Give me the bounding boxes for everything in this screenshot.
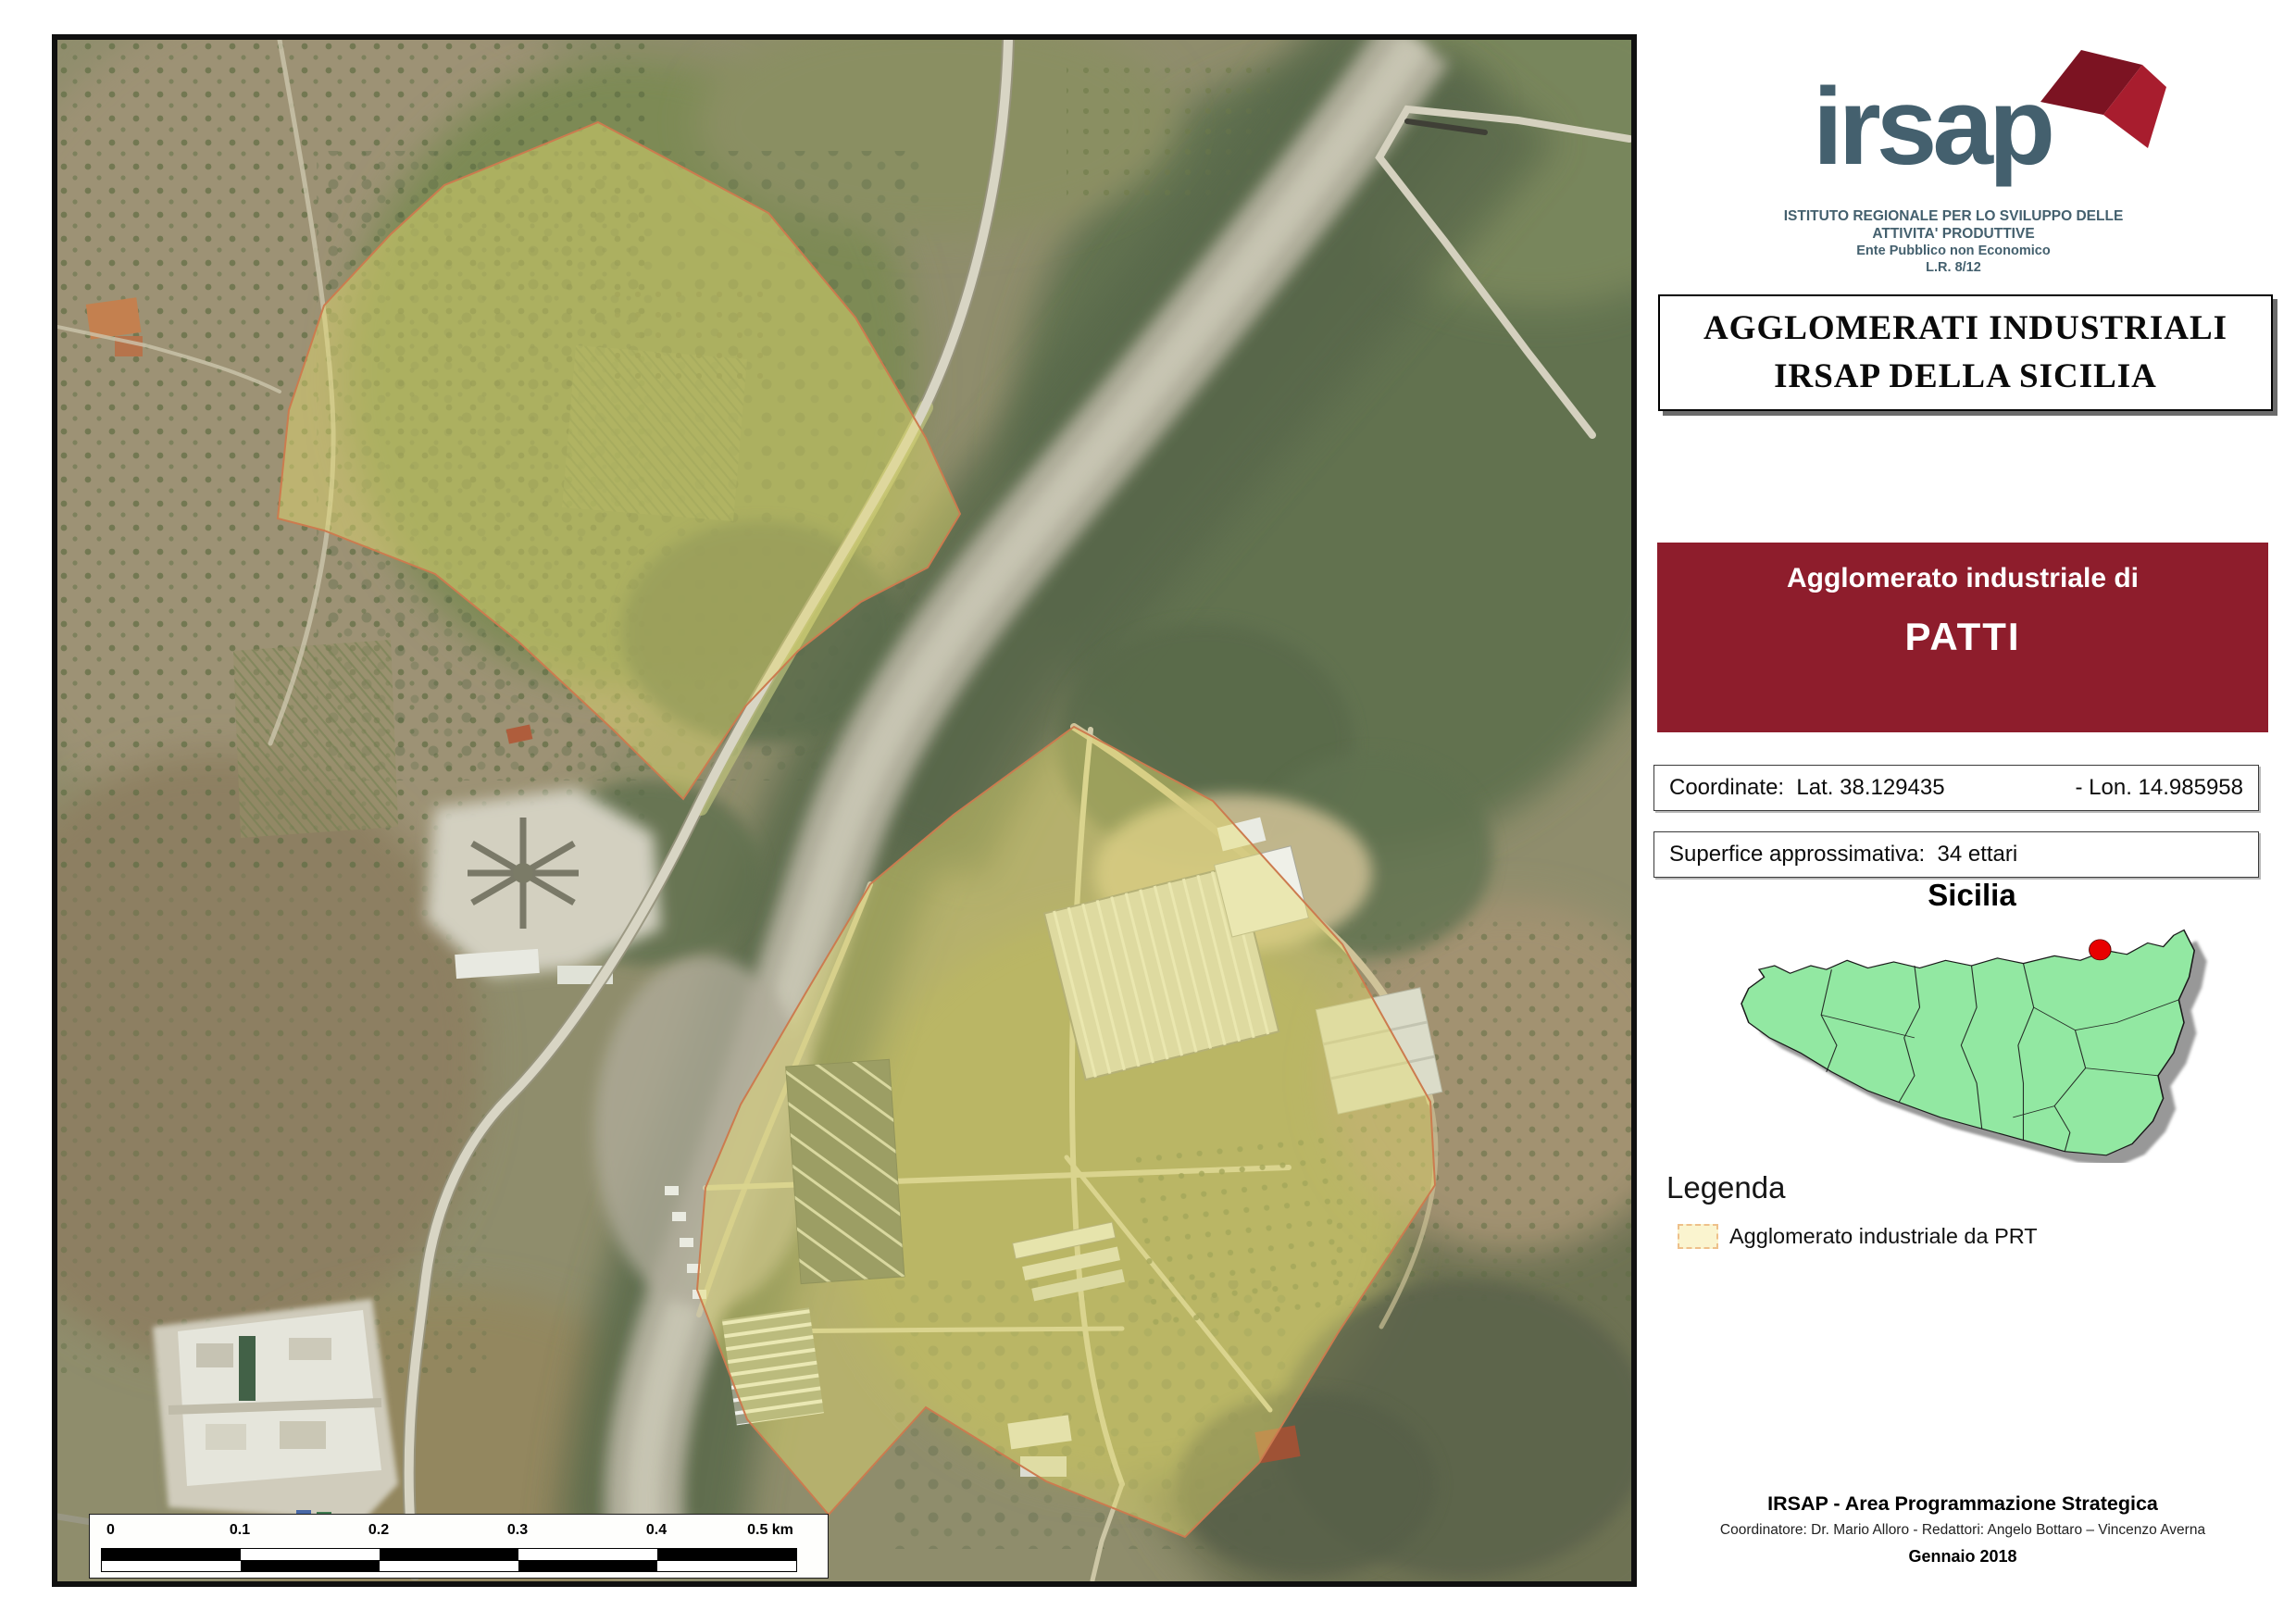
sicilia-island-shape bbox=[1741, 930, 2194, 1155]
scale-tick-label: 0.4 bbox=[646, 1522, 667, 1539]
aerial-orthophoto bbox=[57, 40, 1631, 1581]
scale-bar: 0 0.1 0.2 0.3 0.4 0.5 km bbox=[89, 1514, 829, 1579]
patti-location-marker bbox=[2090, 940, 2112, 960]
scale-tick-label: 0.2 bbox=[368, 1522, 389, 1539]
document-title-line1: AGGLOMERATI INDUSTRIALI bbox=[1660, 305, 2271, 353]
footer-department: IRSAP - Area Programmazione Strategica bbox=[1655, 1492, 2270, 1516]
map-layout-page: 0 0.1 0.2 0.3 0.4 0.5 km irsap ISTITUTO … bbox=[0, 0, 2296, 1623]
latitude-value: Lat. 38.129435 bbox=[1796, 775, 1944, 801]
legend-swatch-prt-zone bbox=[1678, 1224, 1718, 1249]
agglomerato-name: PATTI bbox=[1657, 615, 2268, 659]
footer-authors: Coordinatore: Dr. Mario Alloro - Redatto… bbox=[1655, 1522, 2270, 1539]
scale-bar-checkerboard bbox=[101, 1548, 797, 1572]
institute-line: ATTIVITA' PRODUTTIVE bbox=[1657, 225, 2250, 243]
footer-credits: IRSAP - Area Programmazione Strategica C… bbox=[1655, 1492, 2270, 1567]
document-title-box: AGGLOMERATI INDUSTRIALI IRSAP DELLA SICI… bbox=[1658, 294, 2273, 411]
institute-line: Ente Pubblico non Economico bbox=[1657, 243, 2250, 259]
agglomerato-name-box: Agglomerato industriale di PATTI bbox=[1657, 543, 2268, 732]
surface-value: 34 ettari bbox=[1937, 842, 2017, 868]
inset-map-title: Sicilia bbox=[1731, 878, 2213, 913]
scale-tick-label: 0.5 km bbox=[747, 1522, 793, 1539]
surface-label: Superfice approssimativa: bbox=[1669, 842, 1925, 868]
document-title-line2: IRSAP DELLA SICILIA bbox=[1660, 353, 2271, 401]
institute-line: ISTITUTO REGIONALE PER LO SVILUPPO DELLE bbox=[1657, 207, 2250, 225]
scale-tick-label: 0.1 bbox=[230, 1522, 250, 1539]
coordinates-box: Coordinate: Lat. 38.129435 - Lon. 14.985… bbox=[1653, 765, 2259, 811]
institute-subtitle: ISTITUTO REGIONALE PER LO SVILUPPO DELLE… bbox=[1657, 207, 2250, 276]
footer-date: Gennaio 2018 bbox=[1655, 1547, 2270, 1567]
legend-title: Legenda bbox=[1666, 1170, 1785, 1205]
longitude-value: - Lon. 14.985958 bbox=[2076, 775, 2244, 801]
scale-tick-label: 0.3 bbox=[507, 1522, 528, 1539]
agglomerato-label: Agglomerato industriale di bbox=[1657, 563, 2268, 594]
scale-tick-label: 0 bbox=[106, 1522, 115, 1539]
surface-box: Superfice approssimativa: 34 ettari bbox=[1653, 831, 2259, 878]
coordinate-label: Coordinate: bbox=[1669, 775, 1784, 801]
aerial-map-frame: 0 0.1 0.2 0.3 0.4 0.5 km bbox=[52, 34, 1637, 1587]
institute-line: L.R. 8/12 bbox=[1657, 259, 2250, 276]
legend-item-label: Agglomerato industriale da PRT bbox=[1729, 1224, 2038, 1249]
irsap-flag-icon bbox=[2035, 44, 2174, 156]
sicilia-inset-map bbox=[1733, 924, 2210, 1163]
